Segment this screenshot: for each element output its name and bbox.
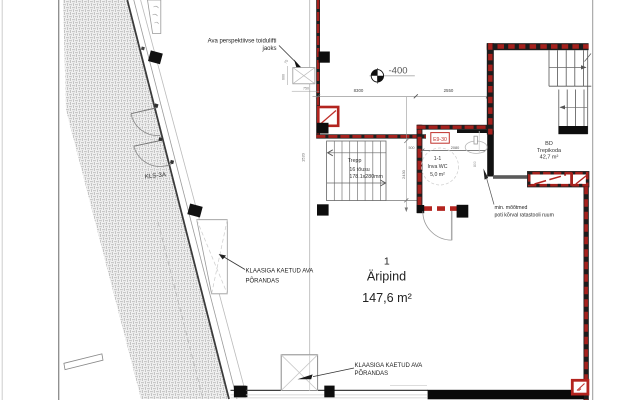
svg-text:Ava perspektiivse toidulifti: Ava perspektiivse toidulifti xyxy=(208,39,277,45)
svg-text:PÕRANDAS: PÕRANDAS xyxy=(246,278,280,285)
svg-text:2080: 2080 xyxy=(451,146,459,150)
svg-text:Trepp: Trepp xyxy=(348,158,362,164)
svg-text:PÕRANDAS: PÕRANDAS xyxy=(355,370,389,377)
svg-text:KLAASIGA KAETUD AVA: KLAASIGA KAETUD AVA xyxy=(355,363,423,369)
svg-text:2550: 2550 xyxy=(444,88,454,93)
svg-text:2430: 2430 xyxy=(401,169,406,179)
svg-text:750: 750 xyxy=(303,87,309,91)
svg-text:5,0 m²: 5,0 m² xyxy=(430,172,445,178)
svg-text:KLAASIGA KAETUD AVA: KLAASIGA KAETUD AVA xyxy=(246,269,314,275)
svg-text:poti kõrval ratastooli ruum: poti kõrval ratastooli ruum xyxy=(495,213,554,219)
svg-text:jaoks: jaoks xyxy=(261,46,276,52)
svg-text:min. mõõtmed: min. mõõtmed xyxy=(495,205,528,211)
svg-text:16 tõusu: 16 tõusu xyxy=(349,167,369,173)
svg-text:Trepikoda: Trepikoda xyxy=(537,148,562,154)
svg-text:178.1x280mm: 178.1x280mm xyxy=(349,174,383,180)
svg-text:1520: 1520 xyxy=(301,152,306,162)
svg-text:BD: BD xyxy=(545,141,553,147)
svg-text:-400: -400 xyxy=(389,66,408,77)
svg-text:8300: 8300 xyxy=(354,88,364,93)
svg-text:600: 600 xyxy=(282,74,286,80)
svg-text:E9-30: E9-30 xyxy=(433,137,447,143)
svg-text:800: 800 xyxy=(473,161,477,167)
svg-text:1-1: 1-1 xyxy=(434,156,442,162)
svg-text:500: 500 xyxy=(409,146,415,150)
svg-text:Äripind: Äripind xyxy=(367,269,406,283)
svg-text:42,7 m²: 42,7 m² xyxy=(540,155,559,161)
svg-text:147,6 m²: 147,6 m² xyxy=(362,291,412,305)
svg-text:Inva WC: Inva WC xyxy=(428,164,448,170)
svg-text:1: 1 xyxy=(384,256,390,268)
